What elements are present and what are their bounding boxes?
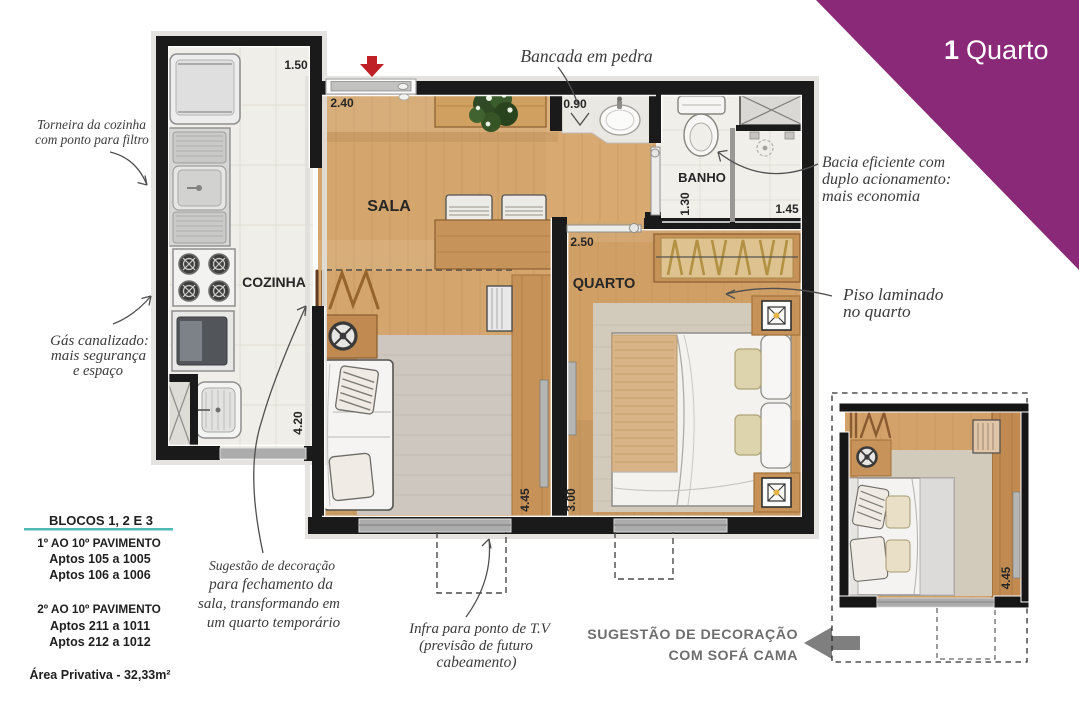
svg-text:mais economia: mais economia	[822, 186, 920, 205]
svg-text:1º AO 10º PAVIMENTO: 1º AO 10º PAVIMENTO	[37, 536, 161, 550]
svg-text:SUGESTÃO DE DECORAÇÃO: SUGESTÃO DE DECORAÇÃO	[587, 625, 798, 643]
svg-text:4.20: 4.20	[291, 411, 305, 435]
svg-text:SALA: SALA	[367, 198, 411, 215]
svg-text:para fechamento da: para fechamento da	[208, 576, 333, 593]
svg-text:Aptos 106 a 1006: Aptos 106 a 1006	[49, 568, 150, 582]
svg-text:BANHO: BANHO	[678, 170, 726, 185]
svg-text:com ponto para filtro: com ponto para filtro	[35, 132, 149, 147]
svg-text:2.40: 2.40	[330, 96, 354, 110]
svg-text:3.00: 3.00	[564, 488, 578, 512]
svg-text:4.45: 4.45	[1001, 566, 1013, 589]
svg-text:BLOCOS 1, 2 E 3: BLOCOS 1, 2 E 3	[49, 513, 153, 528]
svg-text:Gás canalizado:: Gás canalizado:	[50, 333, 149, 349]
svg-text:Aptos 212 a 1012: Aptos 212 a 1012	[49, 635, 150, 649]
svg-text:COM SOFÁ CAMA: COM SOFÁ CAMA	[669, 647, 798, 664]
svg-text:cabeamento): cabeamento)	[436, 654, 516, 671]
svg-text:2.50: 2.50	[570, 235, 594, 249]
svg-text:Infra para ponto de T.V: Infra para ponto de T.V	[408, 621, 552, 637]
svg-text:Sugestão de decoração: Sugestão de decoração	[209, 558, 335, 573]
svg-text:1.30: 1.30	[678, 192, 692, 216]
svg-text:COZINHA: COZINHA	[242, 274, 306, 290]
svg-text:Bacia eficiente com: Bacia eficiente com	[822, 154, 945, 171]
svg-text:Área Privativa - 32,33m²: Área Privativa - 32,33m²	[29, 667, 170, 682]
svg-text:Aptos 105 a 1005: Aptos 105 a 1005	[49, 552, 150, 566]
svg-text:no quarto: no quarto	[843, 302, 911, 321]
svg-text:Aptos 211 a 1011: Aptos 211 a 1011	[50, 619, 150, 633]
svg-text:sala, transformando em: sala, transformando em	[198, 596, 340, 612]
svg-text:(previsão de futuro: (previsão de futuro	[419, 638, 533, 654]
svg-text:2º AO 10º PAVIMENTO: 2º AO 10º PAVIMENTO	[37, 602, 161, 616]
svg-text:Torneira da cozinha: Torneira da cozinha	[37, 117, 146, 132]
svg-text:Bancada em pedra: Bancada em pedra	[520, 46, 652, 66]
svg-text:0.90: 0.90	[563, 97, 587, 111]
svg-text:mais segurança: mais segurança	[51, 348, 146, 364]
svg-text:e espaço: e espaço	[73, 363, 123, 379]
svg-text:um quarto temporário: um quarto temporário	[207, 615, 341, 631]
svg-text:1.45: 1.45	[775, 202, 799, 216]
svg-text:QUARTO: QUARTO	[573, 276, 636, 292]
svg-text:1.50: 1.50	[284, 58, 308, 72]
svg-text:4.45: 4.45	[518, 488, 532, 512]
